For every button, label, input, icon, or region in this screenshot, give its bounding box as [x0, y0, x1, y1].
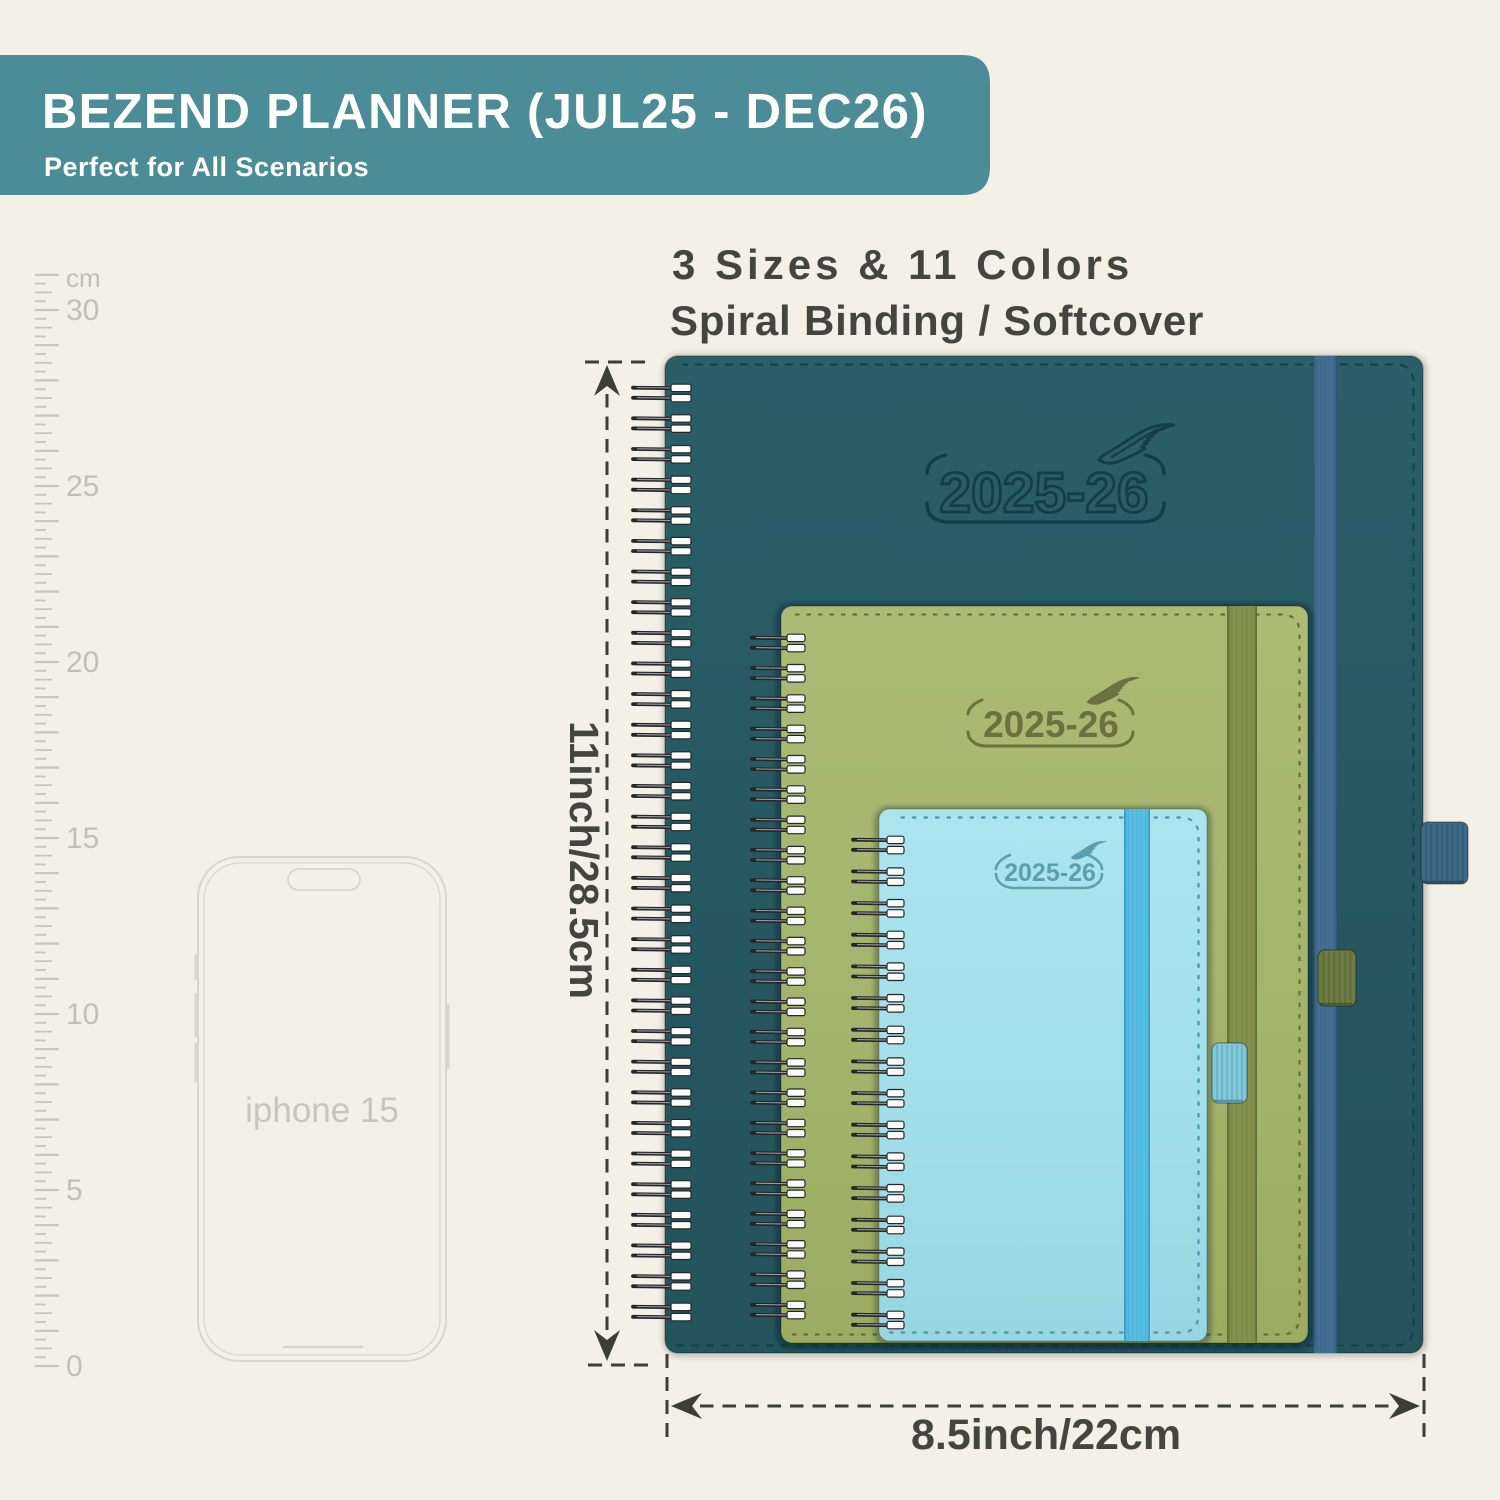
svg-text:20: 20 [66, 646, 99, 679]
svg-text:0: 0 [66, 1350, 83, 1383]
svg-text:cm: cm [66, 263, 101, 293]
svg-text:15: 15 [66, 822, 99, 855]
svg-text:2025-26: 2025-26 [1004, 859, 1096, 887]
svg-text:Perfect for All Scenarios: Perfect for All Scenarios [44, 152, 369, 182]
svg-text:10: 10 [66, 998, 99, 1031]
svg-text:5: 5 [66, 1174, 83, 1207]
svg-text:2025-26: 2025-26 [939, 461, 1148, 525]
svg-text:2025-26: 2025-26 [983, 704, 1119, 745]
svg-text:25: 25 [66, 470, 99, 503]
svg-text:Spiral Binding / Softcover: Spiral Binding / Softcover [670, 297, 1204, 344]
svg-text:30: 30 [66, 294, 99, 327]
svg-text:iphone 15: iphone 15 [245, 1091, 399, 1130]
svg-text:3 Sizes & 11 Colors: 3 Sizes & 11 Colors [672, 241, 1133, 288]
svg-text:8.5inch/22cm: 8.5inch/22cm [911, 1411, 1181, 1459]
svg-text:11inch/28.5cm: 11inch/28.5cm [561, 721, 607, 999]
svg-text:BEZEND PLANNER (JUL25 - DEC26): BEZEND PLANNER (JUL25 - DEC26) [42, 85, 928, 139]
